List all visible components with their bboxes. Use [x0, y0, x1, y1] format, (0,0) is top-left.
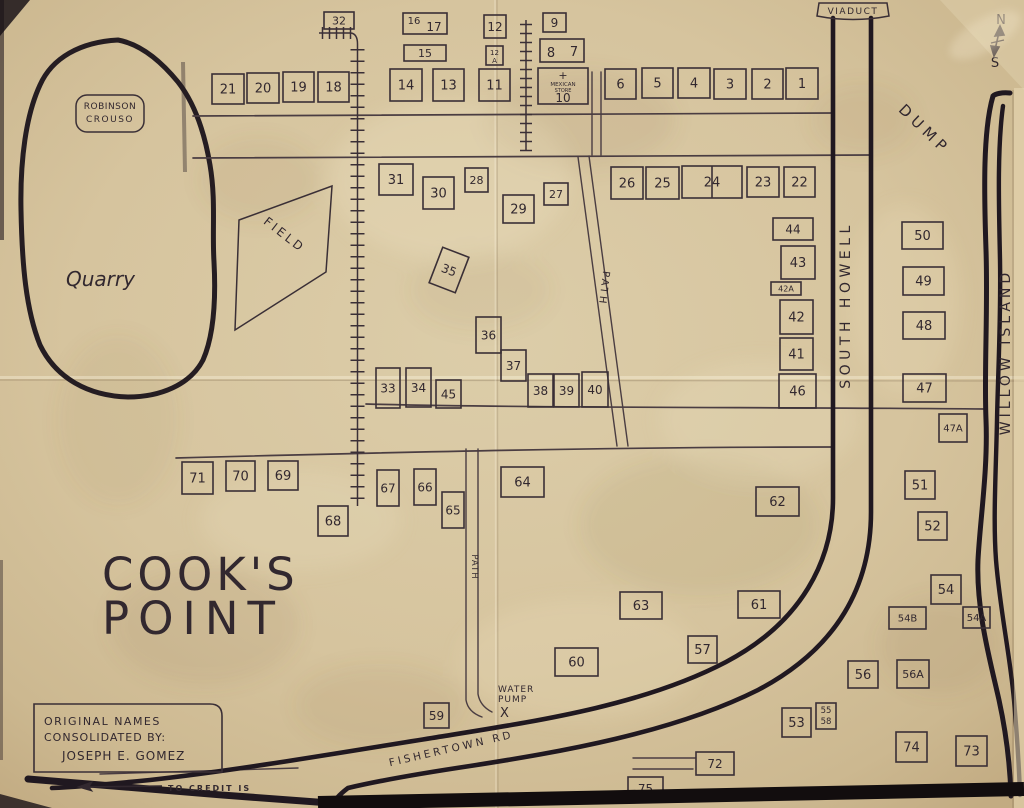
lot-label: 29 [510, 203, 527, 218]
lot-label: 60 [568, 656, 585, 671]
credits-line3: JOSEPH E. GOMEZ [61, 749, 185, 763]
lot-label: 42 [788, 311, 805, 326]
lot-label: 38 [533, 384, 548, 398]
lot-label: 37 [506, 359, 521, 373]
lot-label: 57 [694, 643, 711, 658]
lot-label: 22 [791, 176, 808, 191]
path-lower-label: PATH [469, 554, 479, 579]
water-pump-line2: PUMP [498, 695, 527, 705]
map-photo: 3216171291512A8721201918141311+MEXICANST… [0, 0, 1024, 808]
lot-label: 54B [898, 614, 918, 625]
credits-line2: CONSOLIDATED BY: [44, 731, 166, 744]
lot-label: 21 [220, 83, 237, 98]
lot-label: 58 [821, 717, 832, 727]
lot-label: 59 [429, 709, 444, 723]
lot-label: 43 [790, 256, 807, 271]
water-pump-line1: WATER [498, 685, 534, 695]
lot-label: 70 [232, 470, 249, 485]
lot-label: 56A [902, 668, 924, 681]
lot-label: 12 [487, 20, 502, 34]
lot-label: 66 [417, 480, 432, 494]
lot-label: 6 [616, 78, 624, 93]
water-pump-x: X [500, 706, 509, 721]
lot-label: 15 [418, 47, 432, 60]
lot-label: 54 [938, 583, 955, 598]
lot-label: 13 [440, 79, 457, 94]
lot-label: 48 [916, 319, 933, 334]
lot-label: 42A [778, 284, 794, 293]
lot-label: 24 [704, 176, 721, 191]
lot-label: 31 [388, 173, 405, 188]
robinson-line1: ROBINSON [84, 102, 136, 112]
lot-label: 26 [619, 177, 636, 192]
lot-label: 54A [967, 613, 987, 624]
lot-label: 19 [290, 81, 307, 96]
lot-label: 44 [785, 222, 800, 236]
lot-label: 39 [559, 384, 574, 398]
lot-label: A [492, 57, 497, 65]
lot-label: 56 [855, 668, 872, 683]
lot-label: 72 [707, 757, 722, 771]
lot-label: 4 [690, 77, 698, 92]
lot-label: 33 [380, 381, 395, 395]
lot-label: 28 [470, 174, 484, 187]
lot-label: 14 [398, 79, 415, 94]
lot-label: 12 [490, 49, 499, 57]
lot-label: 18 [325, 81, 342, 96]
lot-label: 17 [426, 20, 441, 34]
lot-label: 25 [654, 177, 671, 192]
lot-label: 64 [514, 476, 531, 491]
lot-label: 49 [915, 275, 932, 290]
south-howell-label: SOUTH HOWELL [838, 221, 854, 389]
lot-label: 20 [255, 82, 272, 97]
lot-label: 45 [441, 387, 456, 401]
lot-label: 51 [912, 479, 929, 494]
lot-label: 34 [411, 381, 426, 395]
lot-label: 47A [943, 424, 963, 435]
lot-label: 61 [751, 598, 768, 613]
lot-label: 36 [481, 328, 496, 342]
lot-label: + [558, 69, 567, 82]
lot-label: 1 [798, 77, 806, 92]
lot-label: 46 [789, 385, 806, 400]
lot-label: 63 [633, 599, 650, 614]
lot-label: 5 [653, 77, 661, 92]
lot-label: 40 [587, 383, 602, 397]
robinson-line2: CROUSO [86, 115, 134, 125]
to-credit-label: TO CREDIT IS [168, 784, 251, 793]
lot-label: 3 [726, 78, 734, 93]
lot-label: 7 [570, 45, 578, 60]
quarry-label: Quarry [66, 267, 136, 291]
lot-label: 55 [821, 706, 832, 716]
willow-island-label: WILLOW ISLAND [998, 269, 1014, 435]
cooks-line2: POINT [102, 592, 284, 645]
lot-label: 68 [325, 515, 342, 530]
lot-label: 2 [763, 78, 771, 93]
lot-label: 67 [380, 481, 395, 495]
lot-label: 74 [903, 741, 920, 756]
lot-label: 53 [788, 716, 805, 731]
lot-label: 71 [189, 472, 206, 487]
lot-label: 69 [275, 469, 292, 484]
lot-label: 50 [914, 229, 931, 244]
lot-label: 27 [549, 188, 563, 201]
lot-label: 8 [547, 46, 555, 61]
lot-label: 30 [430, 187, 447, 202]
viaduct-label: VIADUCT [828, 7, 879, 17]
lot-label: 11 [486, 79, 503, 94]
lot-label: 32 [332, 14, 346, 27]
lot-label: 52 [924, 520, 941, 535]
credits-line1: ORIGINAL NAMES [44, 715, 161, 728]
lot-label: 47 [916, 382, 933, 397]
lot-label: 16 [408, 16, 421, 27]
lot-label: 23 [755, 176, 772, 191]
lot-label: 10 [555, 91, 570, 105]
lot-label: 41 [788, 348, 805, 363]
lot-label: 65 [445, 503, 460, 517]
lot-label: 9 [551, 16, 559, 30]
lot-label: 73 [963, 745, 980, 760]
map-canvas: 3216171291512A8721201918141311+MEXICANST… [0, 0, 1024, 808]
lot-label: 62 [769, 495, 786, 510]
